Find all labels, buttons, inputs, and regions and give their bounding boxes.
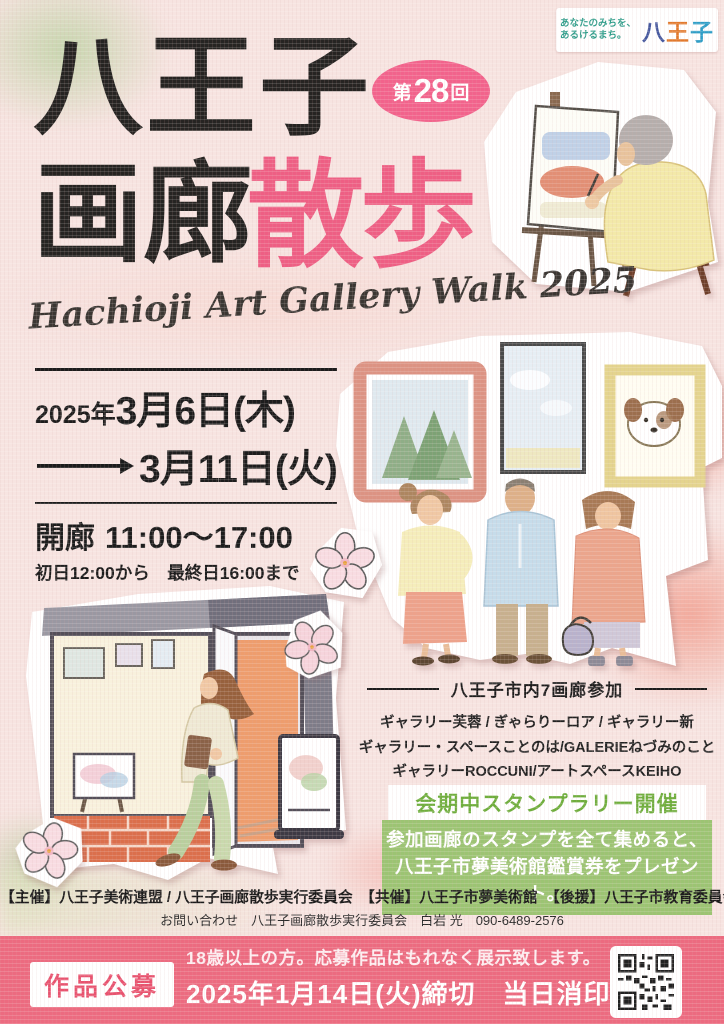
rule-bottom: [35, 502, 337, 504]
submission-deadline: 2025年1月14日(火)締切 当日消印有効: [186, 974, 596, 1011]
end-date-row: 3月11日(火): [35, 438, 337, 494]
title-sanpo: 散歩: [247, 152, 473, 278]
stamp-rally-line1: 参加画廊のスタンプを全て集めると、: [382, 827, 712, 854]
stamp-rally-title: 会期中スタンプラリー開催: [388, 785, 706, 820]
gallery-line: ギャラリー芙蓉 / ぎゃらりーロア / ギャラリー新: [358, 711, 716, 736]
hours-value: 11:00〜17:00: [105, 512, 293, 557]
gallery-viewers-illustration: [330, 328, 724, 668]
poster: あなたのみちを、 あるけるまち。 八王子 八王子 画廊散歩 第28回 Hachi…: [0, 0, 724, 1024]
participating-galleries: 八王子市内7画廊参加 ギャラリー芙蓉 / ぎゃらりーロア / ギャラリー新 ギャ…: [358, 676, 716, 785]
rule-top: [35, 368, 337, 371]
submission-eligibility: 18歳以上の方。応募作品はもれなく展示致します。: [186, 945, 596, 970]
title-garo: 画廊: [33, 149, 253, 278]
start-date: 3月6日(木): [116, 380, 295, 436]
poster-title-line1: 八王子: [33, 28, 372, 147]
logo-tagline: あなたのみちを、 あるけるまち。: [560, 18, 636, 43]
submission-label: 作品公募: [30, 962, 174, 1007]
organizer-credits: 【主催】八王子美術連盟 / 八王子画廊散歩実行委員会 【共催】八王子市夢美術館 …: [0, 886, 724, 907]
qr-code-pattern: [618, 954, 674, 1010]
end-date: 3月11日(火): [139, 438, 337, 494]
contact-info: お問い合わせ 八王子画廊散歩実行委員会 白岩 光 090-6489-2576: [0, 910, 724, 929]
hours-row: 開廊 11:00〜17:00: [35, 512, 337, 557]
hachioji-city-logo: あなたのみちを、 あるけるまち。 八王子: [556, 8, 718, 52]
submission-text: 18歳以上の方。応募作品はもれなく展示致します。 2025年1月14日(火)締切…: [186, 945, 596, 1011]
gallery-line: ギャラリーROCCUNI/アートスペースKEIHO: [358, 760, 716, 785]
hours-note: 初日12:00から 最終日16:00まで: [35, 560, 337, 585]
logo-city-name: 八王子: [642, 13, 714, 47]
hours-label: 開廊: [35, 513, 95, 557]
galleries-header: 八王子市内7画廊参加: [358, 676, 716, 701]
arrow-right-icon: [37, 464, 121, 468]
schedule-block: 2025年 3月6日(木) 3月11日(火) 開廊 11:00〜17:00 初日…: [35, 368, 337, 585]
start-date-row: 2025年 3月6日(木): [35, 380, 337, 436]
galleries-list: ギャラリー芙蓉 / ぎゃらりーロア / ギャラリー新 ギャラリー・スペースことの…: [358, 711, 716, 785]
gallery-line: ギャラリー・スペースことのは/GALERIEねづみのこと: [358, 736, 716, 761]
submission-bar: 作品公募 18歳以上の方。応募作品はもれなく展示致します。 2025年1月14日…: [0, 936, 724, 1024]
poster-title-line2: 画廊散歩: [33, 148, 473, 274]
edition-badge: 第28回: [372, 60, 490, 122]
event-year: 2025年: [35, 395, 116, 436]
qr-code: [610, 946, 682, 1018]
